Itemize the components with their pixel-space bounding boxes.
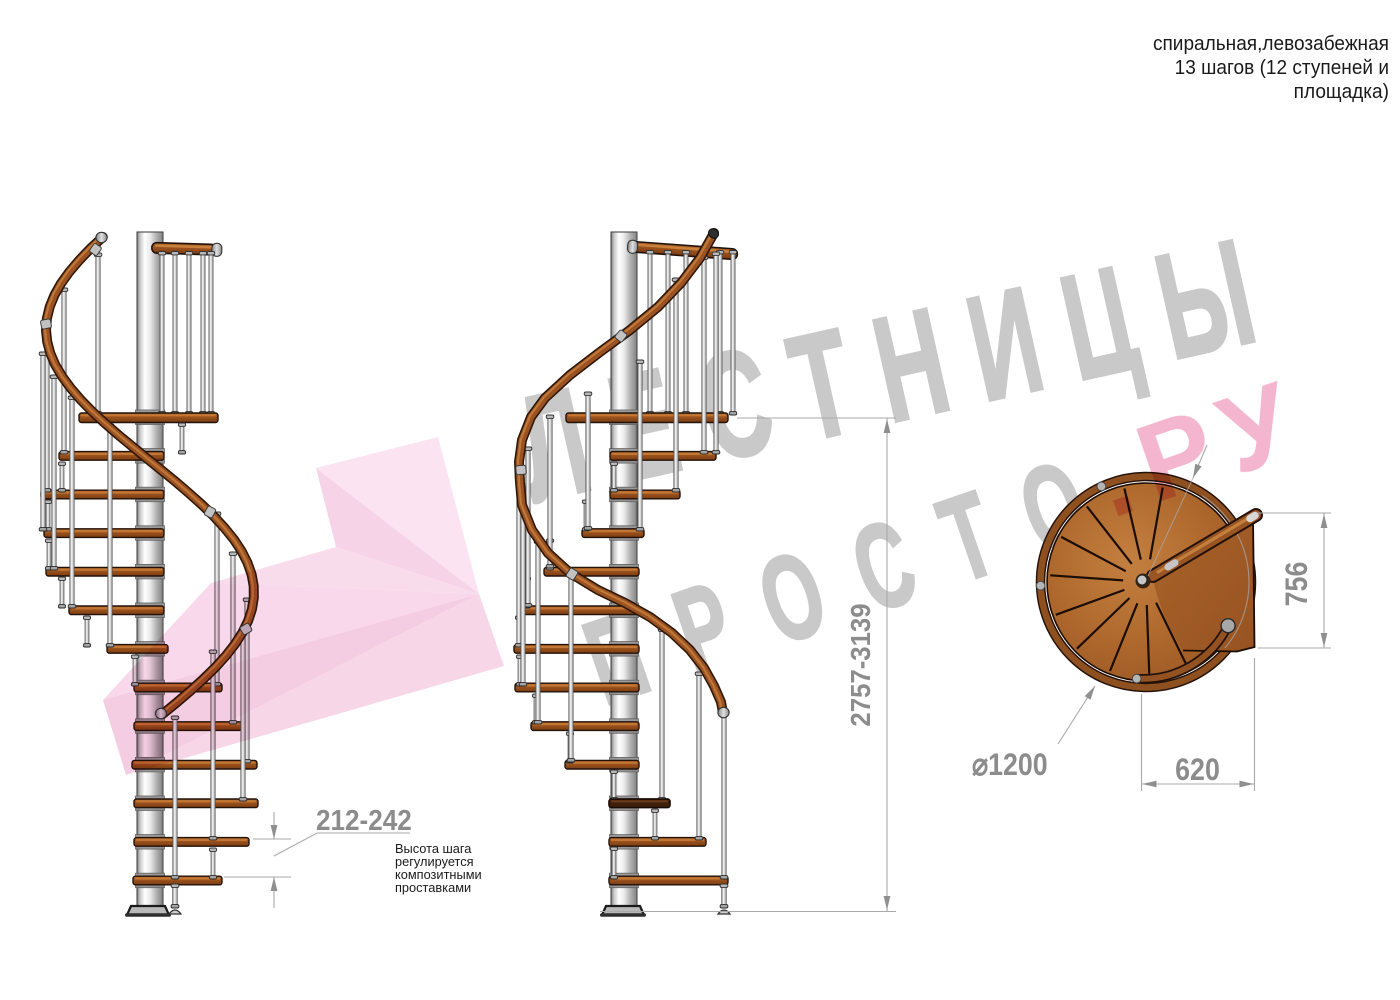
svg-text:проставками: проставками bbox=[395, 880, 471, 895]
svg-text:13 шагов (12 ступеней и: 13 шагов (12 ступеней и bbox=[1175, 56, 1389, 79]
svg-text:620: 620 bbox=[1175, 753, 1220, 787]
svg-text:площадка): площадка) bbox=[1294, 80, 1389, 103]
svg-text:212-242: 212-242 bbox=[316, 804, 412, 837]
svg-text:756: 756 bbox=[1280, 562, 1314, 607]
svg-text:⌀1200: ⌀1200 bbox=[972, 748, 1048, 782]
svg-text:2757-3139: 2757-3139 bbox=[845, 603, 876, 726]
svg-text:спиральная,левозабежная: спиральная,левозабежная bbox=[1153, 32, 1389, 55]
